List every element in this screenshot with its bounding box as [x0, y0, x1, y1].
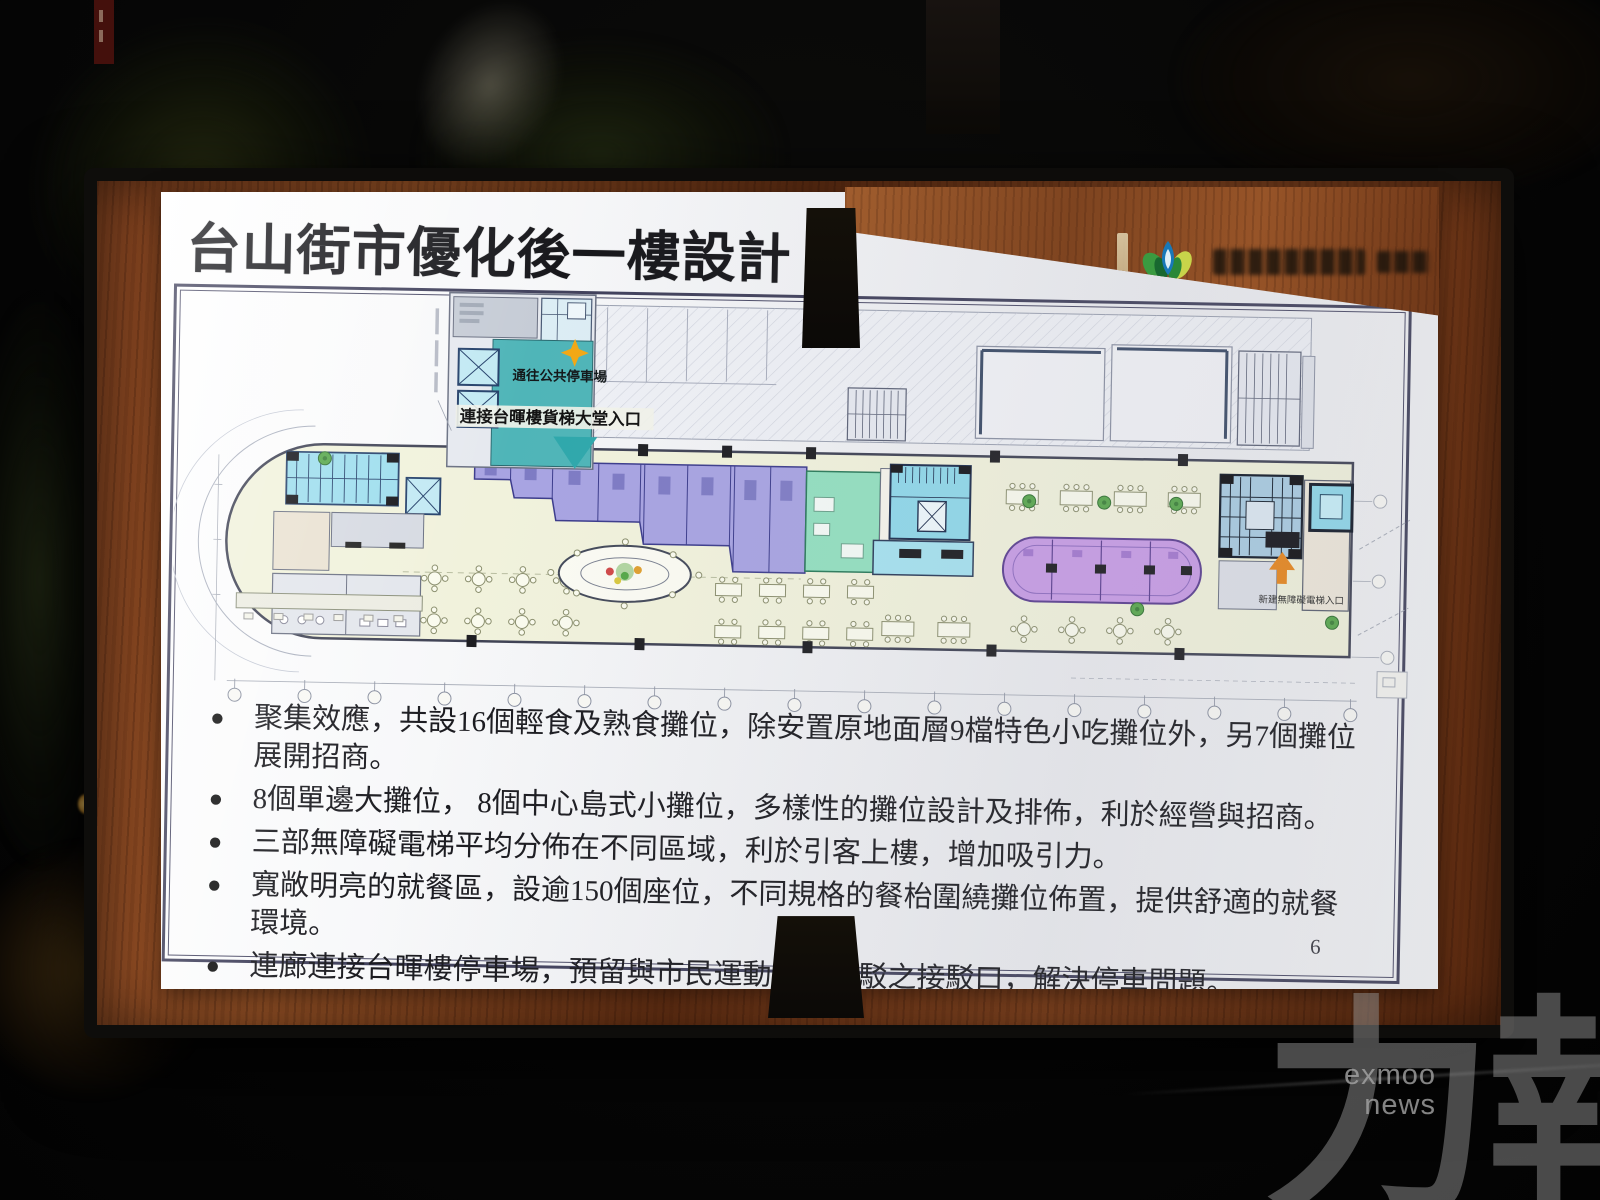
presentation-slide: 台山街市優化後一樓設計: [161, 192, 1438, 989]
page-number: 6: [1310, 934, 1321, 959]
photo-scene: 台山街市優化後一樓設計: [0, 0, 1600, 1200]
background-object: [926, 0, 1000, 134]
label-new-accessible-lift: 新建無障礙電梯入口: [1258, 593, 1344, 607]
background-object: [94, 0, 114, 64]
stalls-island: [1002, 537, 1201, 605]
bullet-text: 三部無障礙電梯平均分佈在不同區域，利於引客上樓，增加吸引力。: [252, 826, 1122, 874]
top-mounting-clip: [802, 208, 860, 348]
plan-main-hall: 新建無障礙電梯入口: [170, 408, 1353, 692]
floor-plan: 新建無障礙電梯入口: [170, 284, 1417, 727]
label-to-public-parking: 通往公共停車場: [512, 367, 607, 385]
bottom-mounting-clip: [768, 916, 864, 1018]
watermark-latin: exmoo news: [1288, 1060, 1436, 1120]
logo-text-blurred: [1377, 251, 1431, 273]
slide-title: 台山街市優化後一樓設計: [186, 204, 792, 294]
plan-upper-annex: [587, 305, 1315, 450]
watermark-news: news: [1288, 1090, 1436, 1120]
logo-text-blurred: [1213, 249, 1365, 275]
watermark-exmoo: exmoo: [1288, 1060, 1436, 1090]
